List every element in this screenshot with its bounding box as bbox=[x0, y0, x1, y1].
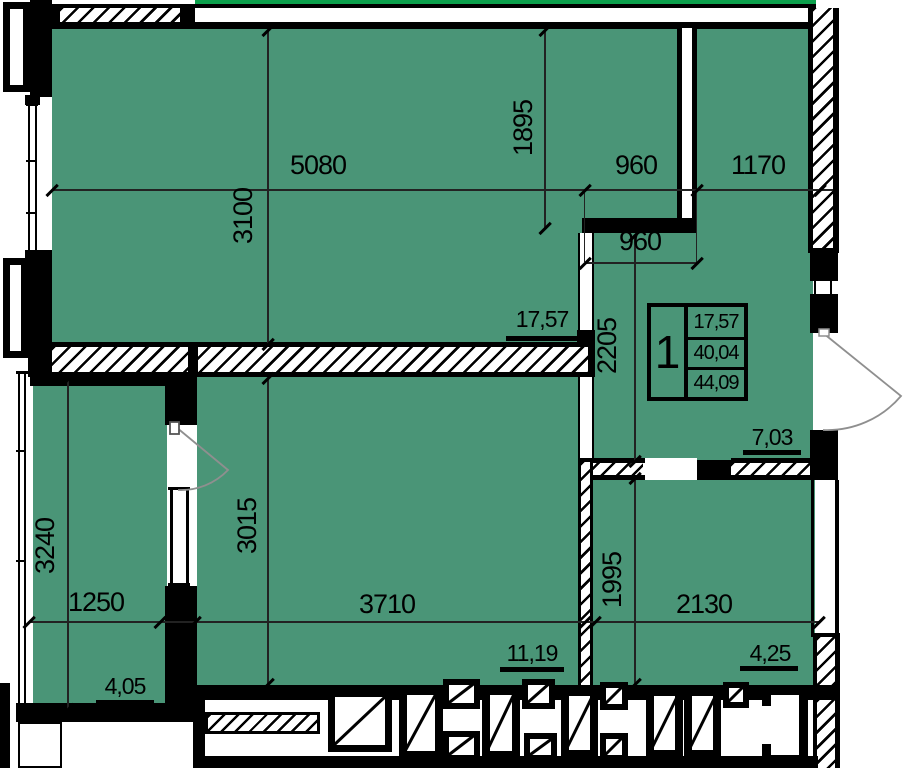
area-label-balcony: 4,05 bbox=[96, 673, 154, 699]
area-underline bbox=[743, 450, 801, 455]
unit-room-count: 1 bbox=[651, 307, 688, 397]
dim-label-bedroom-width: 3710 bbox=[327, 589, 447, 619]
dim-label-niche-width: 960 bbox=[586, 150, 686, 180]
area-label-bathroom: 4,25 bbox=[742, 640, 798, 666]
area-underline bbox=[740, 666, 798, 671]
balcony-door-swing bbox=[176, 427, 228, 490]
entry-door-swing bbox=[823, 333, 901, 430]
dim-label-niche-opening: 960 bbox=[590, 226, 690, 256]
area-label-hall: 7,03 bbox=[743, 424, 801, 450]
dim-label-main-height: 3100 bbox=[228, 158, 262, 273]
area-label-bedroom: 11,19 bbox=[500, 640, 564, 666]
dim-label-bath-width: 2130 bbox=[644, 589, 764, 619]
dim-label-main-width: 5080 bbox=[248, 150, 388, 180]
dim-label-right-top-width: 1170 bbox=[698, 150, 818, 180]
unit-apartment-area: 40,04 bbox=[688, 337, 744, 367]
dim-label-balcony-width: 1250 bbox=[46, 587, 146, 617]
dim-label-niche-height: 1895 bbox=[508, 70, 542, 185]
unit-total-area: 44,09 bbox=[688, 367, 744, 397]
area-underline bbox=[506, 336, 578, 341]
floor-plan: 5080 960 1170 960 3100 1895 2205 1995 30… bbox=[0, 0, 905, 768]
area-underline bbox=[500, 667, 564, 672]
dim-label-hall-height: 2205 bbox=[592, 286, 626, 406]
unit-info-box: 1 17,57 40,04 44,09 bbox=[647, 303, 748, 401]
balcony-door-hinge bbox=[170, 422, 179, 434]
dim-label-bedroom-height: 3015 bbox=[232, 466, 266, 586]
area-underline bbox=[96, 700, 154, 705]
unit-living-area: 17,57 bbox=[688, 307, 744, 337]
area-label-living-room: 17,57 bbox=[504, 306, 580, 332]
dim-label-bath-height: 1995 bbox=[597, 520, 631, 640]
shaft-diagonals bbox=[333, 682, 745, 757]
entry-door-hinge bbox=[819, 329, 829, 336]
